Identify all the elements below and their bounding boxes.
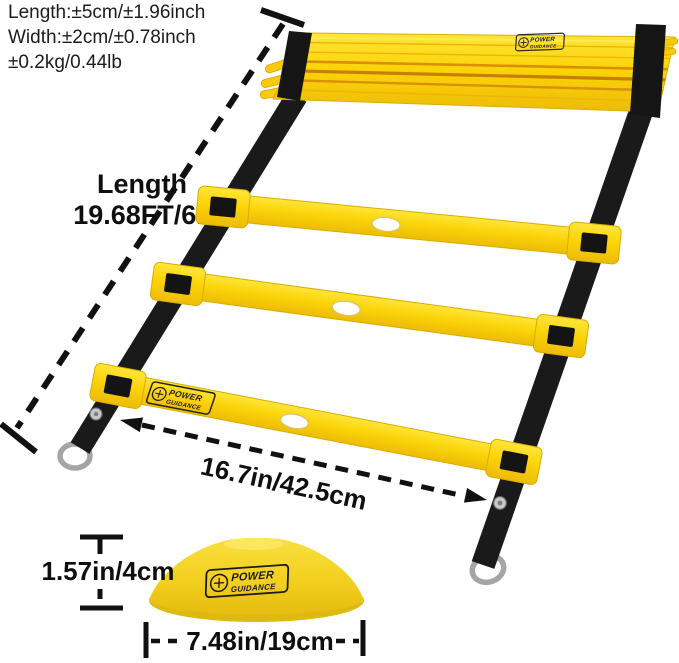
ladder-rung-3: POWER GUIDANCE	[89, 362, 543, 485]
arrowhead-left-icon	[120, 418, 143, 433]
arrowhead-right-icon	[464, 488, 487, 503]
strap-window	[209, 196, 237, 217]
dim-tick-top	[261, 10, 304, 25]
spec-width: Width:±2cm/±0.78inch	[8, 27, 196, 48]
width-label: 16.7in/42.5cm	[198, 451, 370, 516]
agility-ladder-diagram: Length:±5cm/±1.96inch Width:±2cm/±0.78in…	[0, 0, 679, 663]
cone-width-label: 7.48in/19cm	[186, 626, 333, 656]
strap-window	[164, 273, 192, 295]
folded-ladder-stack: POWER GUIDANCE	[259, 24, 678, 118]
ladder-rung-1	[195, 186, 621, 265]
stack-band-right	[630, 24, 666, 118]
rivet-center	[498, 501, 503, 506]
disc-cone: POWER GUIDANCE	[149, 538, 364, 622]
product-image: Length:±5cm/±1.96inch Width:±2cm/±0.78in…	[0, 0, 679, 663]
strap-window	[580, 232, 608, 253]
spec-weight: ±0.2kg/0.44lb	[8, 52, 122, 73]
cone-height-label: 1.57in/4cm	[42, 556, 175, 586]
brand-bottom: GUIDANCE	[530, 43, 558, 49]
ladder-rung-2	[150, 262, 590, 359]
spec-length: Length:±5cm/±1.96inch	[8, 2, 205, 23]
tolerance-specs: Length:±5cm/±1.96inch Width:±2cm/±0.78in…	[8, 2, 205, 73]
strap-window	[547, 325, 575, 347]
length-title: Length	[97, 169, 187, 199]
cone-highlight	[224, 538, 284, 550]
rivet-center	[94, 412, 99, 417]
